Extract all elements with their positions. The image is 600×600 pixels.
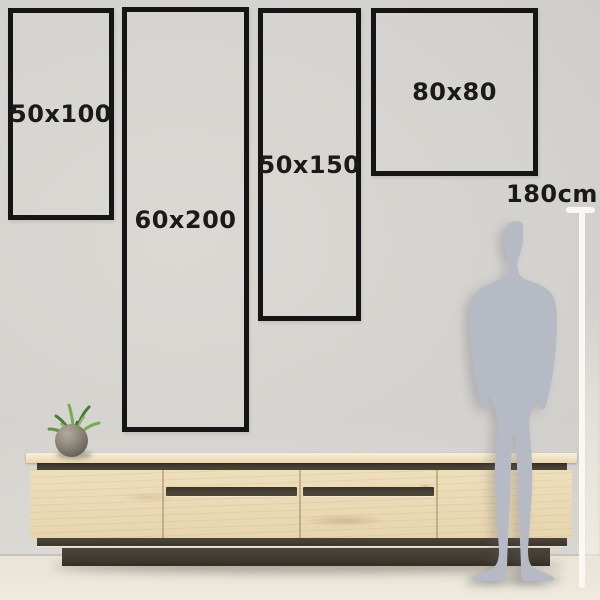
frame-size-label: 80x80	[412, 78, 497, 106]
frame-80x80: 80x80	[371, 8, 538, 176]
frame-60x200: 60x200	[122, 7, 249, 432]
frame-size-label: 50x100	[10, 100, 112, 128]
person-silhouette	[461, 220, 565, 582]
frame-50x100: 50x100	[8, 8, 114, 220]
ruler-height-label: 180cm	[506, 180, 594, 208]
size-guide-scene: 50x100 60x200 50x150 80x80	[0, 0, 600, 600]
sideboard-handle-groove	[166, 487, 297, 496]
sideboard-handle-groove	[303, 487, 434, 496]
ruler-vertical-line	[579, 210, 585, 588]
frame-size-label: 60x200	[135, 206, 237, 234]
sideboard-door-seam	[299, 470, 301, 538]
frame-50x150: 50x150	[258, 8, 361, 321]
frame-size-label: 50x150	[259, 151, 361, 179]
wall-corner-highlight	[584, 290, 600, 556]
sideboard-door-seam	[436, 470, 438, 538]
plant-pot	[55, 424, 88, 457]
sideboard-door-seam	[162, 470, 164, 538]
